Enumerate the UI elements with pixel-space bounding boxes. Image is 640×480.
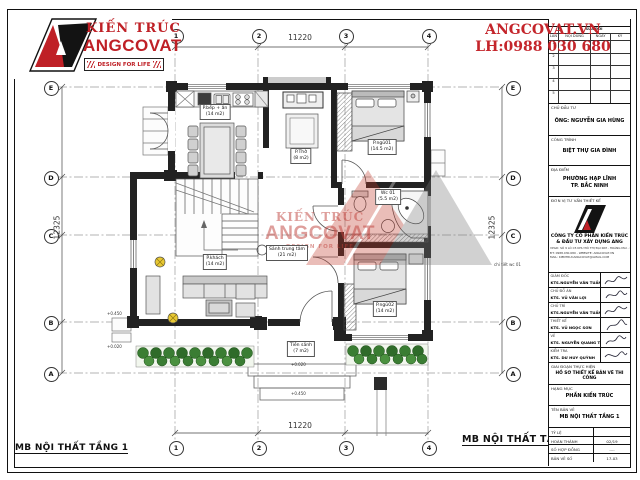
grid-bubble-col3-top: 3 (339, 29, 354, 44)
grid-bubble-rowC-right: C (506, 229, 521, 244)
meta-label: SỐ HỢP ĐỒNG (549, 445, 594, 453)
signature (601, 318, 630, 332)
meta-value: 02/19 (594, 437, 630, 445)
category-section: HẠNG MỤC PHẦN KIẾN TRÚC (549, 384, 630, 405)
design-unit-section: ĐƠN VỊ TƯ VẤN THIẾT KẾ CÔNG TY CỔ PHẦN K… (549, 196, 630, 272)
website: ANGCOVAT.VN (468, 22, 618, 39)
signature (601, 303, 630, 317)
meta-row: SỐ HỢP ĐỒNG-..- (549, 444, 630, 453)
design-unit-logo-icon (571, 204, 609, 234)
grid-bubble-col1-bottom: 1 (169, 441, 184, 456)
sig-name: KTS. DƯ HUY QUỲNH (551, 355, 601, 360)
room-label-porch: Tiền sảnh (7 m2) (287, 341, 315, 357)
elevation-porch: +0.450 (291, 391, 306, 396)
dim-right: 12325 (488, 198, 497, 258)
grid-bubble-col4-top: 4 (422, 29, 437, 44)
wc-detail-note: chi tiết wc 01 (494, 262, 521, 267)
dim-left: 12325 (53, 198, 62, 258)
room-label-bedroom1: P.ngủ01 (14.5 m2) (368, 139, 397, 155)
drawing-title-bottom-left: MB NỘI THẤT TẦNG 1 (15, 443, 128, 454)
hotline: LH:0988 030 680 (468, 39, 618, 56)
signature (601, 288, 630, 302)
design-unit-address3: MAIL: KIENTRUCANGCOVAT@GMAIL.COM (549, 255, 630, 259)
stage-section: GIAI ĐOẠN THỰC HIỆN HỒ SƠ THIẾT KẾ BẢN V… (549, 362, 630, 384)
room-area: (14 m2) (376, 309, 394, 315)
location-line2: TP. BẮC NINH (549, 183, 630, 189)
hedge-right (346, 344, 428, 365)
watermark-line1: KIẾN TRÚC (250, 210, 390, 224)
signature-row: CHỦ TRÌKTS.NGUYỄN VĂN TUẤN (549, 302, 630, 317)
drawing-sheet: KIẾN TRÚC ANGCOVAT DESIGN FOR LIFE KIẾN … (0, 0, 640, 480)
room-area: (8 m2) (293, 156, 308, 162)
signature-row: GIÁM ĐỐCKTS.NGUYỄN VĂN TUẤN (549, 272, 630, 287)
design-unit-label: ĐƠN VỊ TƯ VẤN THIẾT KẾ (549, 197, 630, 203)
sig-role: THIẾT KẾ (551, 319, 601, 323)
elevation-path: +0.020 (291, 362, 306, 367)
dim-top: 11220 (270, 33, 330, 42)
watermark-text: KIẾN TRÚC ANGCOVAT DESIGN FOR LIFE (250, 210, 390, 250)
grid-bubble-rowD-right: D (506, 171, 521, 186)
watermark-line2: ANGCOVAT (250, 224, 390, 244)
sheet-name-label: TÊN BẢN VẼ (549, 406, 630, 412)
brand-tagline-box: DESIGN FOR LIFE (84, 58, 164, 71)
signature (601, 348, 630, 362)
room-area: (14 m2) (203, 112, 228, 118)
meta-row: HOÀN THÀNH02/19 (549, 436, 630, 445)
sig-role: CHỦ ĐỒ ÁN (551, 289, 601, 293)
title-block: SỬA ĐỔI LẦN NỘI DUNG NGÀY KÝ 1 2 3 4 5 C… (548, 19, 630, 466)
sig-role: KIỂM TRA (551, 349, 601, 353)
meta-row: BẢN VẼ SỐ17-03 (549, 453, 630, 462)
room-area: (14.5 m2) (371, 147, 394, 153)
grid-bubble-col2-top: 2 (252, 29, 267, 44)
brand-logo-line2: ANGCOVAT (83, 36, 182, 56)
location-section: ĐỊA ĐIỂM PHƯỜNG HẠP LĨNH TP. BẮC NINH (549, 165, 630, 196)
project-section: CÔNG TRÌNH BIỆT THỰ GIA ĐÌNH (549, 135, 630, 165)
elevation-left-bottom: +0.020 (107, 344, 122, 349)
location-line1: PHƯỜNG HẠP LĨNH (549, 176, 630, 182)
room-label-wc: Wc 01 (5.5 m2) (375, 189, 401, 205)
stage-value: HỒ SƠ THIẾT KẾ BẢN VẼ THI CÔNG (549, 371, 630, 381)
grid-bubble-rowA-right: A (506, 367, 521, 382)
room-label-kitchen: P.bếp + ăn (14 m2) (200, 104, 231, 120)
sig-role: VẼ (551, 334, 601, 338)
entry-path (374, 377, 387, 436)
room-area: (14 m2) (206, 262, 224, 268)
meta-value: -..- (594, 445, 630, 453)
grid-bubble-rowD-left: D (44, 171, 59, 186)
grid-bubble-rowE-right: E (506, 81, 521, 96)
contact-block: ANGCOVAT.VN LH:0988 030 680 (468, 22, 618, 56)
sig-name: KTS. VŨ NGỌC SƠN (551, 325, 601, 330)
room-area: (7 m2) (290, 349, 312, 355)
grid-bubble-col2-bottom: 2 (252, 441, 267, 456)
elevation-left-top: +0.450 (107, 311, 122, 316)
sig-name: KTS.NGUYỄN VĂN TUẤN (551, 310, 601, 315)
stage-label: GIAI ĐOẠN THỰC HIỆN (549, 363, 630, 369)
sheet-name-section: TÊN BẢN VẼ MB NỘI THẤT TẦNG 1 (549, 405, 630, 427)
signature-row: VẼKTS. NGUYỄN QUANG THÁI (549, 332, 630, 347)
room-label-bedroom2: P.ngủ02 (14 m2) (373, 301, 397, 317)
bedroom2-furniture (344, 254, 423, 330)
investor-section: CHỦ ĐẦU TƯ ÔNG: NGUYỄN GIA HÙNG (549, 103, 630, 135)
room-label-hall: Sảnh trung tâm (21 m2) (266, 245, 308, 261)
rev-row-num: 4 (549, 79, 559, 91)
signatures-section: GIÁM ĐỐCKTS.NGUYỄN VĂN TUẤN CHỦ ĐỒ ÁNKTS… (549, 272, 630, 362)
sig-name: KTS. NGUYỄN QUANG THÁI (551, 340, 601, 345)
location-label: ĐỊA ĐIỂM (549, 166, 630, 172)
brand-logo-line1: KIẾN TRÚC (86, 21, 181, 36)
investor-label: CHỦ ĐẦU TƯ (549, 104, 630, 110)
hedge-left (136, 346, 254, 367)
grid-bubble-rowE-left: E (44, 81, 59, 96)
meta-label: HOÀN THÀNH (549, 437, 594, 445)
sig-name: KTS. VŨ VĂN LỢI (551, 295, 601, 300)
sig-name: KTS.NGUYỄN VĂN TUẤN (551, 280, 601, 285)
sig-role: GIÁM ĐỐC (551, 274, 601, 278)
grid-bubble-rowB-right: B (506, 316, 521, 331)
signature-row: CHỦ ĐỒ ÁNKTS. VŨ VĂN LỢI (549, 287, 630, 302)
category-value: PHẦN KIẾN TRÚC (549, 393, 630, 399)
room-area: (21 m2) (269, 253, 305, 259)
meta-label: TỶ LỆ (549, 428, 594, 436)
signature-row: THIẾT KẾKTS. VŨ NGỌC SƠN (549, 317, 630, 332)
dim-bottom: 11220 (270, 421, 330, 430)
sheet-name-value: MB NỘI THẤT TẦNG 1 (549, 414, 630, 420)
tagline-hatch-left (87, 61, 95, 68)
sig-role: CHỦ TRÌ (551, 304, 601, 308)
room-area: (5.5 m2) (378, 197, 398, 203)
signature (601, 333, 630, 347)
meta-value: 17-03 (594, 454, 630, 462)
category-label: HẠNG MỤC (549, 385, 630, 391)
room-label-living: P.khách (14 m2) (203, 254, 227, 270)
grid-bubble-rowA-left: A (44, 367, 59, 382)
dining-table (188, 123, 246, 178)
grid-bubble-col4-bottom: 4 (422, 441, 437, 456)
meta-value (594, 428, 630, 436)
rev-row-num: 3 (549, 66, 559, 78)
meta-section: TỶ LỆ HOÀN THÀNH02/19 SỐ HỢP ĐỒNG-..- BẢ… (549, 427, 630, 463)
investor-value: ÔNG: NGUYỄN GIA HÙNG (549, 118, 630, 124)
brand-tagline: DESIGN FOR LIFE (97, 62, 150, 68)
meta-label: BẢN VẼ SỐ (549, 454, 594, 462)
tagline-hatch-right (153, 61, 161, 68)
grid-bubble-col3-bottom: 3 (339, 441, 354, 456)
project-label: CÔNG TRÌNH (549, 136, 630, 142)
project-value: BIỆT THỰ GIA ĐÌNH (549, 148, 630, 154)
signature-row: KIỂM TRAKTS. DƯ HUY QUỲNH (549, 347, 630, 362)
room-label-altar: P.Thờ (8 m2) (290, 148, 311, 164)
signature (601, 273, 630, 287)
meta-row: TỶ LỆ (549, 427, 630, 436)
grid-bubble-rowB-left: B (44, 316, 59, 331)
altar-table (283, 92, 323, 148)
